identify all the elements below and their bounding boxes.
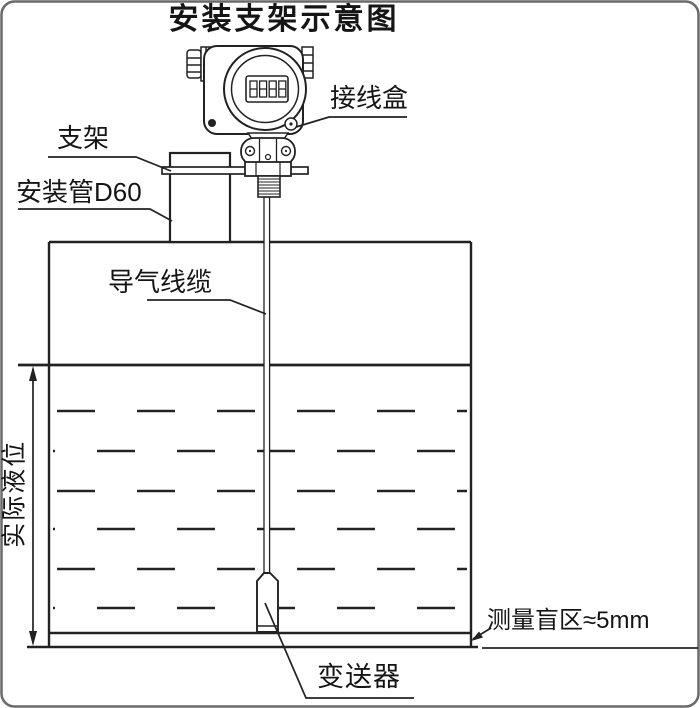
dimension-arrow-down-icon [29, 631, 37, 646]
label-transmitter: 变送器 [317, 663, 401, 693]
actual-level-dimension [29, 366, 37, 646]
label-bracket: 支架 [57, 124, 109, 153]
label-junction-box: 接线盒 [330, 84, 408, 113]
label-mounting-pipe: 安装管D60 [16, 178, 142, 207]
hex-nut [245, 162, 291, 176]
process-connection-flange [241, 138, 295, 165]
screw-right-icon [285, 118, 297, 130]
leader-bracket [48, 157, 171, 171]
screw-left-icon [208, 119, 216, 127]
page-title: 安装支架示意图 [158, 3, 410, 36]
label-air-cable: 导气线缆 [108, 268, 212, 297]
leader-junction-box [296, 117, 407, 127]
leader-air-cable [147, 300, 266, 314]
label-blind-zone: 测量盲区≈5mm [487, 608, 650, 634]
label-actual-level: 实际液位 [1, 433, 29, 555]
blind-zone-arrow-icon [471, 632, 483, 642]
probe-shape [257, 573, 278, 632]
tank-outline [18, 242, 478, 647]
dimension-arrow-up-icon [29, 366, 37, 381]
diagram-canvas: 安装支架示意图 接线盒 支架 安装管D60 导气线缆 实际液位 测量盲区≈5mm… [0, 0, 700, 708]
cable-line [264, 197, 270, 574]
threaded-stub [258, 176, 280, 197]
leader-mounting-pipe [18, 209, 172, 221]
